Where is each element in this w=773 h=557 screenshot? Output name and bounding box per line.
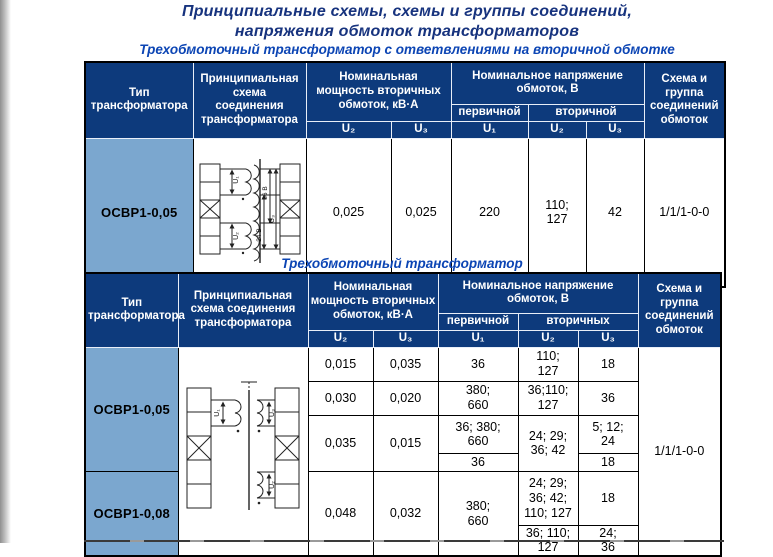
schematic-label-u3: U₃ <box>269 215 276 223</box>
t2-r1-voltage-u3: 18 <box>578 347 638 381</box>
t2-r3-voltage-u3a: 5; 12; 24 <box>578 415 638 454</box>
t2-r4-voltage-u3a: 18 <box>578 472 638 525</box>
schematic-label-u3: U₃ <box>269 409 276 417</box>
t2-r4-voltage-u2a: 24; 29; 36; 42; 110; 127 <box>518 472 578 525</box>
t2-r3-voltage-u3b: 18 <box>578 454 638 472</box>
transformer-schematic-taps: U₁ U₂ 24 В 36 В U₃ <box>194 153 305 271</box>
t1-header-u2-power: U₂ <box>306 121 391 138</box>
t1-header-voltage-group: Номинальное напряжение обмоток, В <box>451 62 644 104</box>
t1-header-winding-group: Схема и группа соединений обмоток <box>644 62 725 138</box>
schematic-label-24v: 24 В <box>256 229 263 242</box>
cutoff-next-table-edge <box>84 540 724 542</box>
transformer-schematic-three-winding: U₁ U₃ U₂ <box>179 362 307 540</box>
page-header: Принципиальные схемы, схемы и группы сое… <box>84 2 730 58</box>
t2-r2-voltage-u2: 36;110; 127 <box>518 381 578 415</box>
t2-schematic-cell: U₁ U₃ U₂ <box>178 347 308 556</box>
t2-r2-voltage-u1: 380; 660 <box>438 381 518 415</box>
t2-type-osvr1-008: ОСВР1-0,08 <box>85 472 178 556</box>
t2-r4-voltage-u1: 380; 660 <box>438 472 518 556</box>
schematic-label-36v: 36 В <box>262 187 269 200</box>
t2-r4-power-u2: 0,048 <box>308 472 373 556</box>
t1-header-power-group: Номинальная мощность вторичных обмоток, … <box>306 62 451 121</box>
t2-r1-voltage-u2: 110; 127 <box>518 347 578 381</box>
t2-header-scheme: Принципиальная схема соединения трансфор… <box>178 273 308 347</box>
transformer-table-taps: Тип трансформатора Принципиальная схема … <box>84 61 726 288</box>
schematic-label-u1: U₁ <box>214 409 221 417</box>
t2-r4-power-u3: 0,032 <box>373 472 438 556</box>
t2-r3-voltage-u2: 24; 29; 36; 42 <box>518 415 578 472</box>
table1-caption: Трехобмоточный трансформатор с ответвлен… <box>84 42 730 58</box>
t2-r2-power-u2: 0,030 <box>308 381 373 415</box>
t2-r3-power-u2: 0,035 <box>308 415 373 472</box>
t1-header-type: Тип трансформатора <box>85 62 193 138</box>
t2-header-u1: U₁ <box>438 330 518 347</box>
page-title-line1: Принципиальные схемы, схемы и группы сое… <box>84 2 730 22</box>
t2-r3-voltage-u1b: 36 <box>438 454 518 472</box>
t2-header-primary: первичной <box>438 313 518 330</box>
t1-header-u2: U₂ <box>528 121 586 138</box>
t2-r3-voltage-u1a: 36; 380; 660 <box>438 415 518 454</box>
schematic-label-u2: U₂ <box>233 232 240 240</box>
t2-header-u3-power: U₃ <box>373 330 438 347</box>
t2-header-winding-group: Схема и группа соединений обмоток <box>638 273 721 347</box>
t2-header-power-group: Номинальная мощность вторичных обмоток, … <box>308 273 438 330</box>
t2-header-type: Тип трансформатора <box>85 273 178 347</box>
page-edge-shadow <box>0 0 11 543</box>
t2-type-osvr1-005: ОСВР1-0,05 <box>85 347 178 472</box>
t2-r1-voltage-u1: 36 <box>438 347 518 381</box>
t1-header-secondary: вторичной <box>528 104 644 121</box>
schematic-label-u1: U₁ <box>233 176 240 184</box>
t2-header-voltage-group: Номинальное напряжение обмоток, В <box>438 273 638 313</box>
t1-header-u3: U₃ <box>586 121 644 138</box>
t1-header-primary: первичной <box>451 104 528 121</box>
t1-header-scheme: Принципиальная схема соединения трансфор… <box>193 62 306 138</box>
page-title-line2: напряжения обмоток трансформаторов <box>84 22 730 42</box>
t1-header-u3-power: U₃ <box>391 121 451 138</box>
table-row: ОСВР1-0,05 <box>85 347 721 381</box>
t2-r2-voltage-u3: 36 <box>578 381 638 415</box>
t2-header-u2-power: U₂ <box>308 330 373 347</box>
t2-r1-power-u3: 0,035 <box>373 347 438 381</box>
t2-winding-group: 1/1/1-0-0 <box>638 347 721 556</box>
transformer-table-three-winding: Тип трансформатора Принципиальная схема … <box>84 272 722 557</box>
t2-header-u3: U₃ <box>578 330 638 347</box>
t2-header-secondary: вторичных <box>518 313 638 330</box>
t1-header-u1: U₁ <box>451 121 528 138</box>
t2-r3-power-u3: 0,015 <box>373 415 438 472</box>
t2-r2-power-u3: 0,020 <box>373 381 438 415</box>
table2-caption: Трехобмоточный трансформатор <box>84 256 720 272</box>
t2-r1-power-u2: 0,015 <box>308 347 373 381</box>
t2-header-u2: U₂ <box>518 330 578 347</box>
schematic-label-u2: U₂ <box>269 481 276 489</box>
